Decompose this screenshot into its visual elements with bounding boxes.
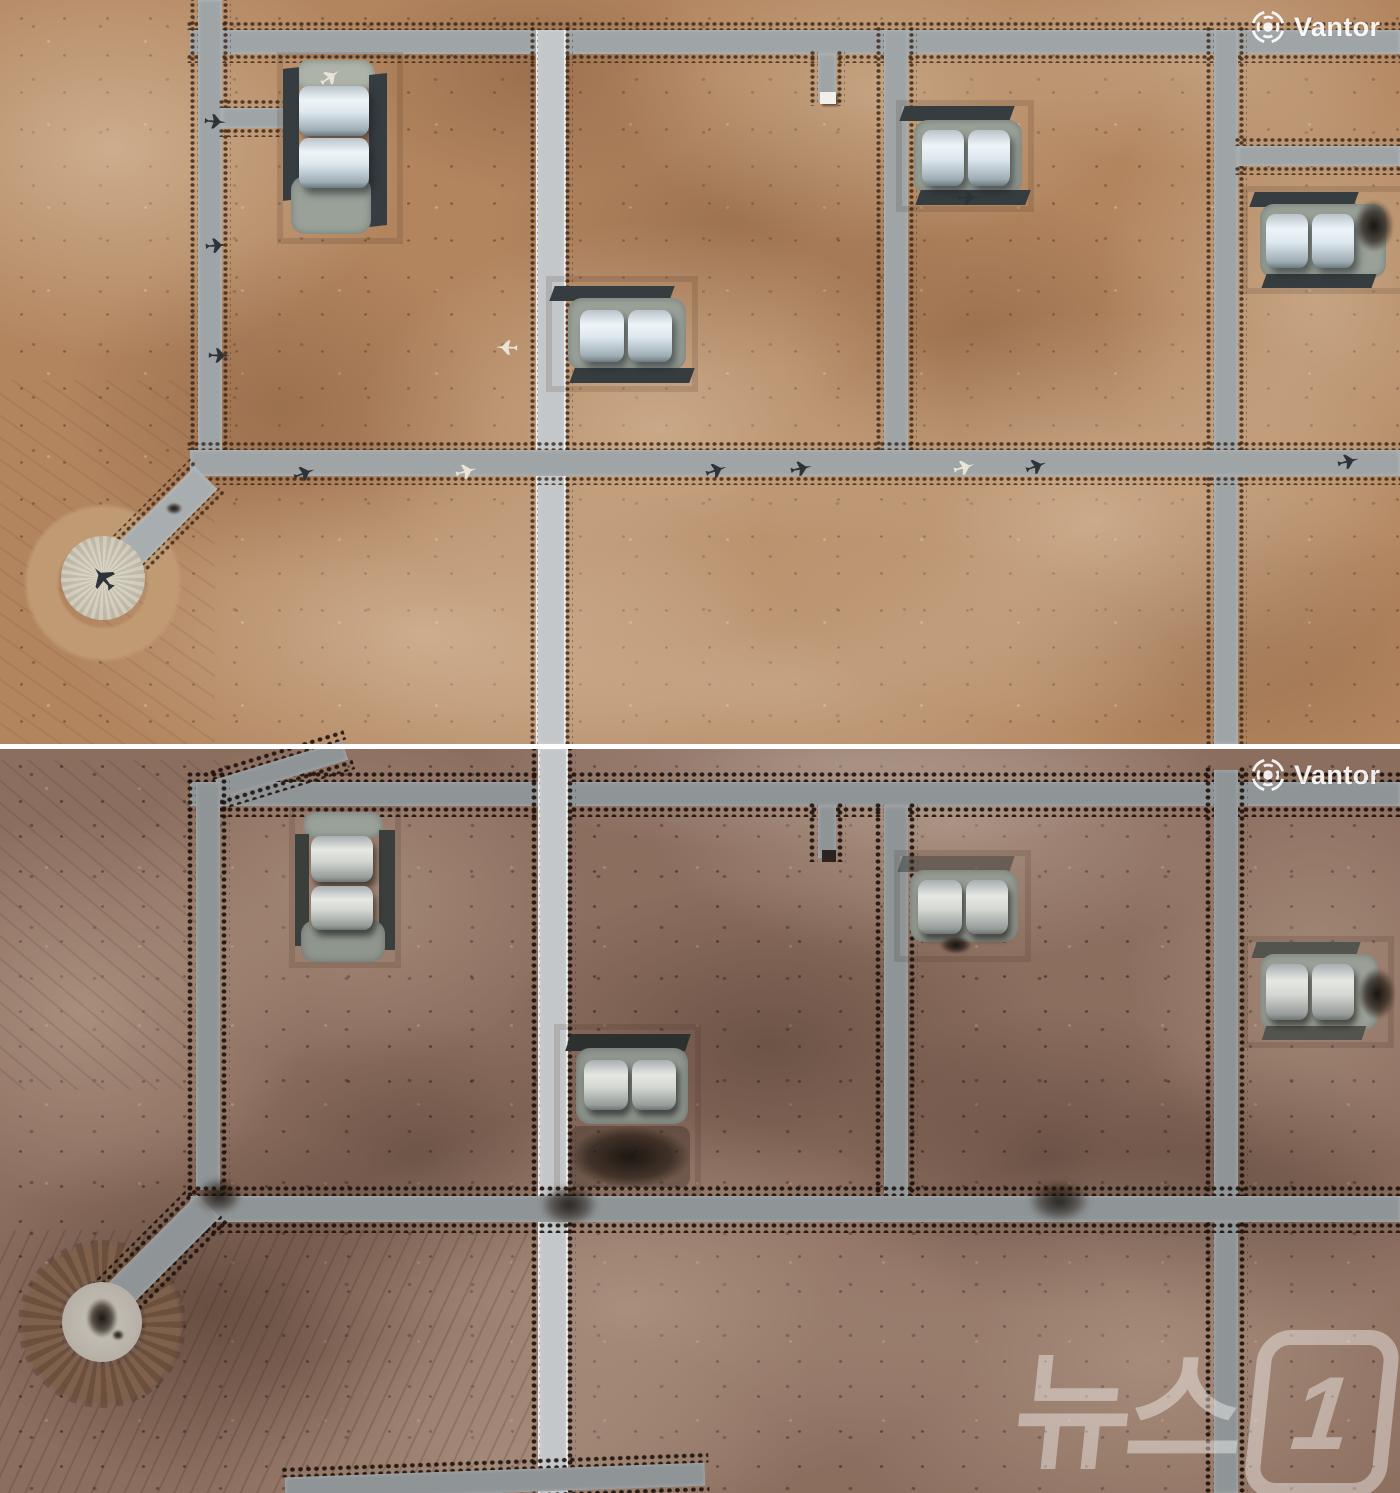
road <box>1238 146 1400 166</box>
after-panel <box>0 749 1400 1493</box>
hangar-complex <box>283 58 397 238</box>
vantor-watermark: Vantor <box>1251 10 1380 44</box>
vantor-wordmark: Vantor <box>1294 12 1380 43</box>
hangar-shelter <box>1312 214 1354 268</box>
revetment-wall <box>569 368 694 383</box>
road <box>884 30 908 470</box>
hangar-shelter <box>628 310 672 362</box>
before-panel: Vantor <box>0 0 1400 744</box>
hangar-shelter <box>580 310 624 362</box>
revetment-wall <box>369 73 387 227</box>
hangar-complex <box>552 282 692 386</box>
parked-aircraft <box>1354 200 1394 252</box>
track-marks-overlay <box>0 760 220 1090</box>
road <box>536 30 566 744</box>
hangar-complex <box>902 106 1028 206</box>
hangar-shelter <box>968 130 1010 186</box>
hangar-shelter <box>1266 214 1308 268</box>
vantor-logo-icon <box>1251 10 1285 44</box>
track-marks-overlay <box>0 1230 545 1493</box>
divider-line <box>0 744 1400 749</box>
fighter-jet-icon <box>496 340 520 356</box>
road <box>190 450 1400 476</box>
road <box>198 0 222 472</box>
hangar-shelter <box>299 138 369 188</box>
vehicle-blob <box>166 503 182 514</box>
hangar-complex <box>1248 192 1400 288</box>
revetment-wall <box>899 106 1014 121</box>
hangar-shelter <box>922 130 964 186</box>
road <box>222 108 286 128</box>
revetment-wall <box>1261 274 1376 288</box>
satellite-comparison-image: Vantor <box>0 0 1400 1493</box>
service-structure <box>820 92 836 104</box>
hangar-shelter <box>299 86 369 136</box>
